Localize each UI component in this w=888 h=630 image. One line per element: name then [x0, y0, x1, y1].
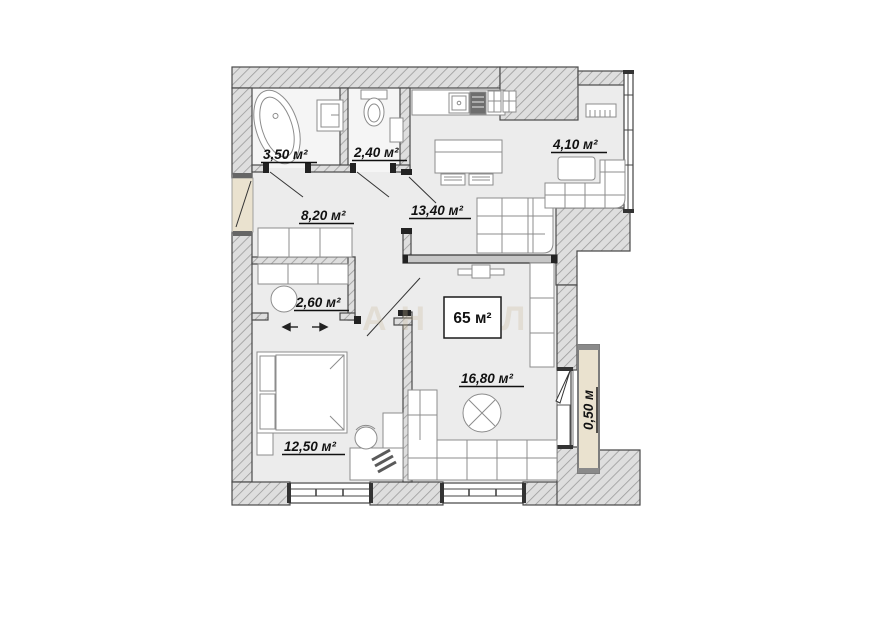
wall-loggia-top [578, 71, 628, 85]
kitchen-area-label: 13,40 м² [411, 203, 464, 218]
wall-bath-bottom-2 [309, 165, 354, 172]
floor-plan-page: АН АЛ 3,50 м² 2,40 м² 4,10 м² 8,20 м² 13… [0, 0, 888, 630]
hallway-area-label: 8,20 м² [301, 208, 346, 223]
balcony-width-label-group: 0,50 м [581, 387, 597, 433]
bedroom-area-label: 12,50 м² [284, 439, 337, 454]
kitchen-island [435, 140, 502, 185]
kitchen-sofa [477, 198, 553, 253]
living-window [440, 483, 526, 503]
wall-wardrobe-top [252, 257, 355, 264]
floor-plan: АН АЛ 3,50 м² 2,40 м² 4,10 м² 8,20 м² 13… [0, 0, 888, 630]
desk-chair [355, 427, 377, 449]
wall-left-lower [232, 232, 252, 482]
loggia-shelf [586, 104, 616, 117]
wc-sink [390, 118, 403, 142]
bed [257, 352, 347, 433]
wall-wardrobe-bottom-2 [340, 313, 355, 320]
bedroom-window [287, 483, 373, 503]
wall-top [232, 67, 500, 88]
hallway-cabinet [258, 228, 352, 257]
wall-living-right-upper [557, 285, 577, 370]
wall-kitchen-living-divider [403, 255, 557, 263]
balcony-door-window [556, 367, 573, 449]
wc-area-label: 2,40 м² [353, 145, 399, 160]
wall-bottom-1 [232, 482, 290, 505]
wall-wardrobe-bottom-1 [252, 313, 268, 320]
wall-left-upper [232, 88, 252, 178]
total-area-label: 65 м² [453, 310, 491, 327]
balcony-width-label: 0,50 м [581, 390, 596, 430]
wardrobe-basin [271, 286, 297, 312]
living-area-label: 16,80 м² [461, 371, 514, 386]
nightstand [257, 433, 273, 455]
bathroom-sink [317, 100, 343, 131]
bathroom-area-label: 3,50 м² [263, 147, 308, 162]
wall-hall-kitchen [403, 232, 411, 258]
wall-bottom-2 [370, 482, 443, 505]
wall-loggia-lower [556, 208, 630, 285]
wall-wardrobe-right [348, 257, 355, 320]
kitchen-counter [412, 90, 516, 115]
loggia-table [558, 157, 595, 180]
stove-icon [470, 92, 486, 114]
loggia-area-label: 4,10 м² [552, 137, 598, 152]
round-table [463, 394, 501, 432]
total-area-badge: 65 м² [444, 297, 501, 338]
wardrobe-area-label: 2,60 м² [295, 295, 341, 310]
